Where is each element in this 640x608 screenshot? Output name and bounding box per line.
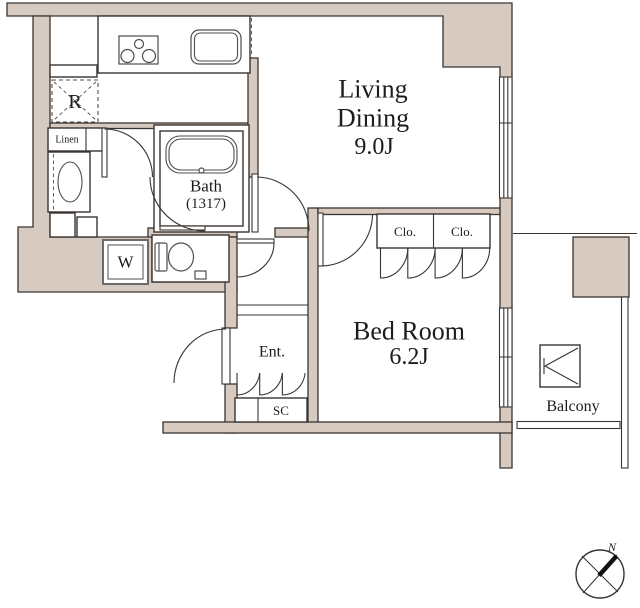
living-dining-label-2: Dining <box>337 104 409 133</box>
closet-right-label: Clo. <box>451 224 473 239</box>
bed-room-size-label: 6.2J <box>389 344 428 370</box>
bath-size-label: (1317) <box>186 196 226 212</box>
closet-left-label: Clo. <box>394 224 416 239</box>
toilet-door-leaf <box>237 239 274 243</box>
storage-block-1 <box>50 213 75 237</box>
wall-bottom <box>163 422 512 433</box>
balcony-drain-symbol <box>540 345 580 387</box>
toilet-room <box>152 235 274 282</box>
kitchen-shelf <box>50 65 97 77</box>
entrance-door <box>174 328 230 384</box>
toilet-door-arc <box>237 243 274 277</box>
storage-block-2 <box>77 217 97 237</box>
bedroom-window <box>500 308 513 407</box>
entrance-door-arc <box>174 329 226 383</box>
sink-icon <box>191 30 241 64</box>
bedroom-door-leaf <box>318 213 323 266</box>
bedroom-door <box>318 213 373 266</box>
entrance-step-lines <box>237 305 308 315</box>
washroom-door-arc <box>105 129 153 177</box>
shoe-closet-label: SC <box>273 403 289 418</box>
wall-bedroom-left <box>308 208 318 423</box>
living-door-leaf <box>252 174 258 232</box>
living-door-arc <box>257 177 309 231</box>
bath-label: Bath <box>190 177 223 196</box>
washroom-door <box>102 128 153 177</box>
toilet-door <box>237 239 274 277</box>
closets: Clo. Clo. <box>377 214 490 278</box>
shoe-closet: SC <box>235 373 307 422</box>
washroom-door-leaf <box>102 128 107 177</box>
living-door <box>252 174 309 232</box>
stove-icon <box>119 36 158 64</box>
washing-machine-space: W <box>103 240 148 284</box>
floor-plan-drawing: R Linen W <box>0 0 640 608</box>
entrance-area: Ent. SC <box>174 305 308 422</box>
washer-label: W <box>117 253 134 272</box>
balcony-right-rail <box>622 297 629 468</box>
balcony-bottom-rail <box>517 422 620 429</box>
living-dining-size-label: 9.0J <box>354 134 393 160</box>
kitchen: R <box>50 16 252 122</box>
living-dining-label-1: Living <box>338 75 407 104</box>
bath-room: Bath (1317) <box>150 125 249 232</box>
entrance-label: Ent. <box>259 344 285 361</box>
compass-icon: N <box>576 540 624 598</box>
washbasin-unit <box>48 152 90 212</box>
linen-closet: Linen <box>48 128 104 151</box>
bedroom-door-arc <box>321 214 373 266</box>
balcony-corner-block <box>573 237 629 297</box>
north-label: N <box>607 540 617 554</box>
living-window <box>500 77 513 198</box>
refrigerator-label: R <box>68 91 82 113</box>
shoe-closet-box <box>235 398 307 422</box>
closet-folding-doors <box>381 248 490 278</box>
shoe-closet-folding-doors <box>237 373 305 395</box>
refrigerator-space: R <box>52 80 98 122</box>
bed-room-label: Bed Room <box>353 317 465 346</box>
entrance-door-leaf <box>222 328 230 384</box>
linen-label: Linen <box>55 135 78 146</box>
balcony-label: Balcony <box>546 398 599 415</box>
floor-plan-page: R Linen W <box>0 0 640 608</box>
